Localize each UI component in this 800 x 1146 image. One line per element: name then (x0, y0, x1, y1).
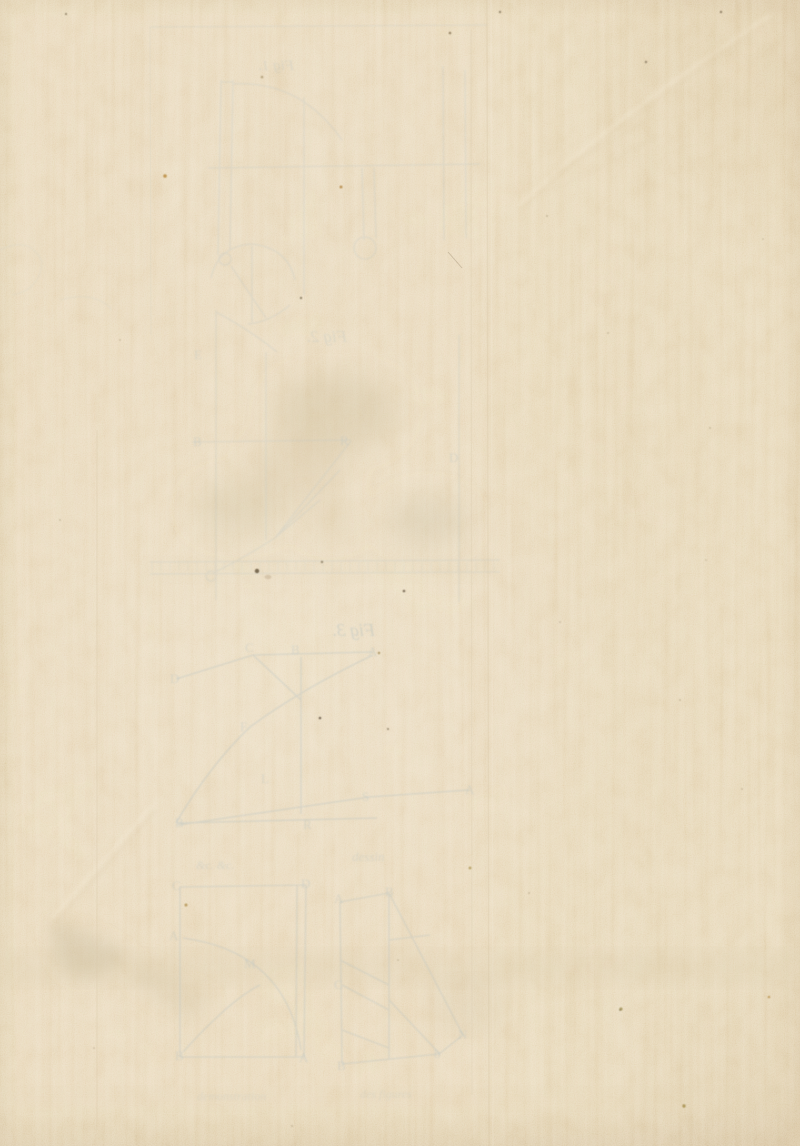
svg-text:B: B (291, 642, 300, 657)
svg-text:D: D (301, 876, 310, 891)
svg-text:C: C (245, 640, 254, 655)
svg-text:S: S (362, 789, 369, 804)
svg-text:M: M (244, 956, 256, 971)
svg-text:A: A (169, 928, 179, 943)
svg-text:L: L (261, 771, 269, 786)
svg-text:A: A (334, 891, 344, 906)
svg-text:Fig 3.: Fig 3. (332, 620, 376, 640)
svg-text:R: R (303, 817, 312, 832)
svg-text:B: B (385, 884, 394, 899)
svg-text:E: E (194, 347, 202, 362)
svg-text:F: F (240, 719, 247, 734)
svg-text:D: D (170, 671, 179, 686)
svg-text:demonstration: demonstration (197, 1089, 266, 1103)
svg-text:dessin: dessin (352, 849, 385, 864)
svg-text:Fig 2.: Fig 2. (306, 327, 348, 346)
svg-text:des figures: des figures (360, 1087, 412, 1101)
svg-text:R: R (340, 433, 349, 448)
svg-text:Fig 1.: Fig 1. (258, 58, 295, 74)
svg-text:C: C (334, 977, 343, 992)
svg-text:&c. &c.: &c. &c. (196, 858, 234, 872)
svg-text:b: b (434, 1046, 441, 1061)
svg-text:C: C (172, 878, 181, 893)
svg-text:B: B (193, 434, 202, 449)
svg-text:B: B (175, 815, 184, 830)
svg-text:D: D (449, 450, 458, 465)
svg-text:A: A (465, 782, 475, 797)
svg-text:B: B (337, 1058, 346, 1073)
svg-text:A: A (299, 1050, 309, 1065)
svg-text:A: A (368, 644, 378, 659)
svg-text:B: B (175, 1048, 184, 1063)
